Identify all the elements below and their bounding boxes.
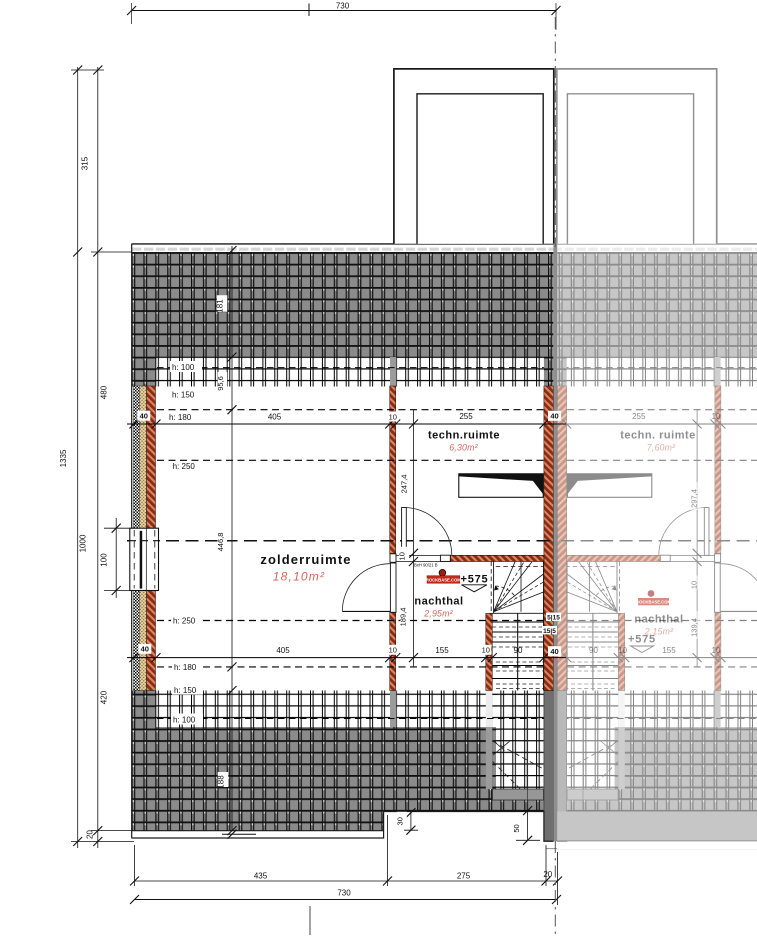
svg-text:480: 480 — [100, 385, 109, 399]
svg-text:188: 188 — [217, 775, 226, 789]
svg-text:435: 435 — [254, 872, 268, 881]
svg-text:nachthal: nachthal — [634, 614, 683, 626]
svg-text:10: 10 — [618, 646, 627, 655]
svg-text:BxH 90/21 B: BxH 90/21 B — [414, 563, 438, 568]
svg-text:275: 275 — [457, 872, 471, 881]
svg-text:155: 155 — [435, 646, 449, 655]
svg-text:h: 100: h: 100 — [173, 716, 196, 725]
svg-text:405: 405 — [276, 646, 290, 655]
svg-text:6,30m²: 6,30m² — [449, 443, 478, 453]
svg-text:zolderruimte: zolderruimte — [260, 552, 351, 567]
svg-text:30: 30 — [395, 817, 404, 825]
svg-text:10: 10 — [482, 646, 490, 655]
svg-text:1000: 1000 — [79, 534, 88, 552]
svg-text:h: 150: h: 150 — [174, 686, 197, 695]
svg-text:10: 10 — [712, 412, 721, 421]
svg-text:90: 90 — [514, 646, 523, 655]
svg-text:15|5: 15|5 — [543, 628, 556, 635]
svg-text:10: 10 — [712, 646, 721, 655]
svg-text:255: 255 — [459, 412, 473, 421]
svg-text:100: 100 — [99, 553, 108, 567]
svg-text:h: 150: h: 150 — [172, 390, 195, 399]
svg-text:247,4: 247,4 — [399, 475, 408, 494]
svg-text:h: 250: h: 250 — [173, 616, 196, 625]
svg-text:10: 10 — [690, 581, 699, 589]
svg-text:h: 250: h: 250 — [173, 462, 196, 471]
svg-text:95,6: 95,6 — [216, 376, 225, 391]
svg-text:ROCKBASE.COM: ROCKBASE.COM — [426, 578, 461, 583]
svg-text:40: 40 — [550, 412, 558, 421]
svg-text:10: 10 — [389, 646, 397, 655]
svg-text:40: 40 — [550, 647, 558, 656]
svg-text:181: 181 — [216, 299, 225, 313]
svg-text:20: 20 — [86, 830, 95, 839]
svg-text:h: 100: h: 100 — [172, 363, 195, 372]
svg-text:18,10m²: 18,10m² — [273, 570, 325, 584]
svg-text:50: 50 — [512, 824, 521, 832]
svg-text:5|15: 5|15 — [547, 615, 560, 622]
svg-text:+575: +575 — [461, 574, 489, 586]
svg-text:90: 90 — [589, 646, 598, 655]
svg-text:2,95m²: 2,95m² — [423, 609, 453, 619]
svg-text:40: 40 — [141, 645, 149, 654]
svg-text:139,4: 139,4 — [690, 618, 699, 637]
svg-text:techn.ruimte: techn.ruimte — [428, 430, 500, 442]
svg-text:155: 155 — [662, 646, 676, 655]
svg-text:189,4: 189,4 — [399, 608, 408, 627]
svg-text:10: 10 — [398, 552, 407, 560]
svg-text:h: 180: h: 180 — [174, 663, 197, 672]
svg-text:20: 20 — [543, 870, 552, 879]
svg-text:730: 730 — [337, 889, 351, 898]
svg-text:1335: 1335 — [59, 449, 68, 467]
svg-text:nachthal: nachthal — [414, 596, 463, 608]
svg-text:255: 255 — [632, 412, 646, 421]
svg-text:420: 420 — [100, 690, 109, 704]
svg-text:+575: +575 — [628, 634, 656, 646]
svg-text:730: 730 — [336, 2, 350, 11]
svg-text:315: 315 — [81, 156, 90, 170]
svg-text:ROCKBASE.COM: ROCKBASE.COM — [636, 600, 671, 605]
svg-text:405: 405 — [268, 413, 282, 422]
svg-text:h: 180: h: 180 — [169, 413, 192, 422]
svg-text:10: 10 — [389, 412, 397, 421]
svg-text:7,60m²: 7,60m² — [647, 443, 676, 453]
svg-text:297,4: 297,4 — [690, 489, 699, 508]
svg-text:techn. ruimte: techn. ruimte — [620, 430, 696, 442]
svg-text:40: 40 — [140, 412, 148, 421]
svg-text:446,8: 446,8 — [216, 533, 225, 552]
